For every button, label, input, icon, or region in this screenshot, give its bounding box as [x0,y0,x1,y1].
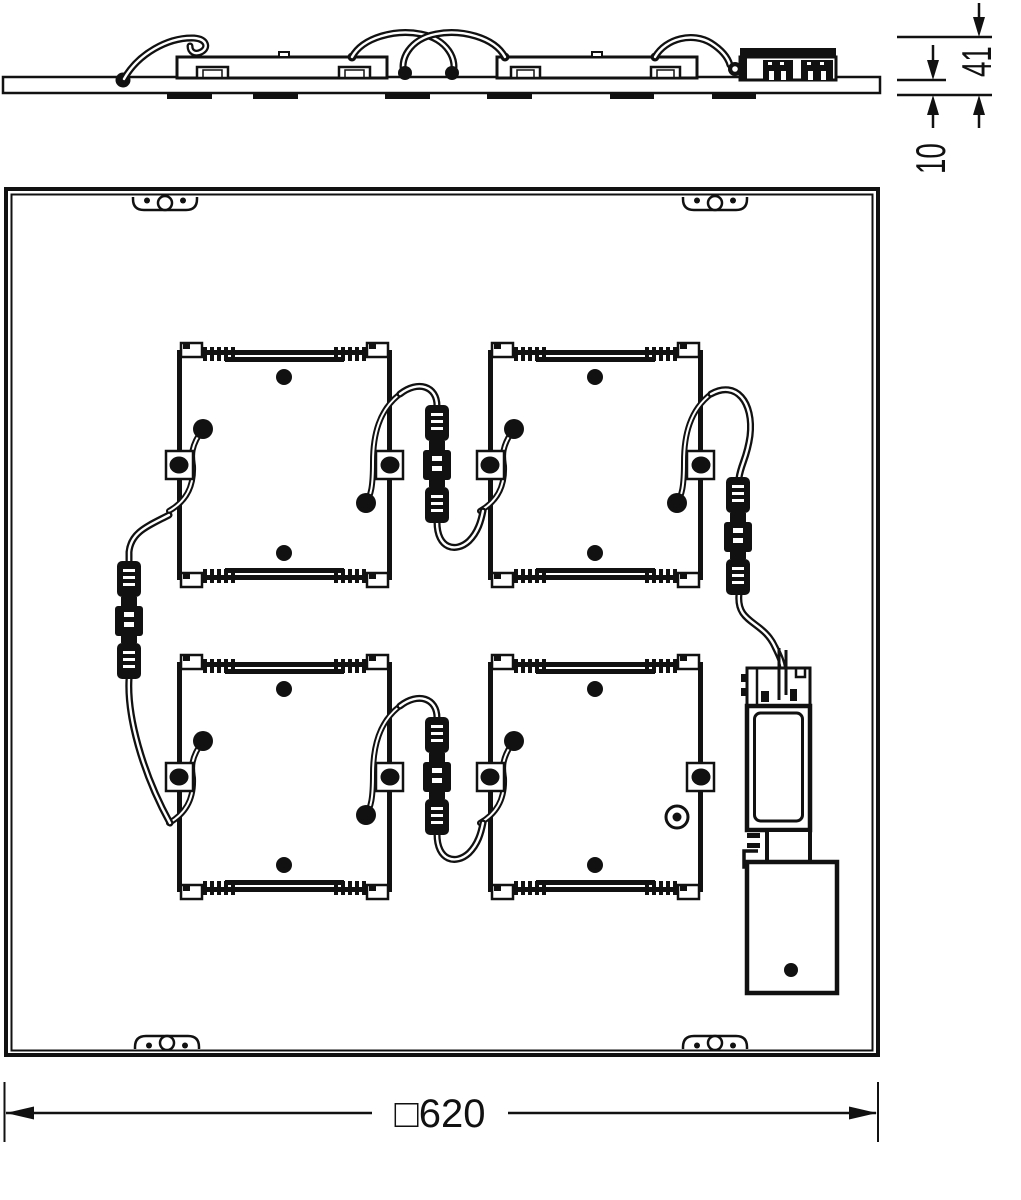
driver-screw-hole [784,963,798,977]
led-module-bottom-left [166,655,403,899]
cable-connector-right [724,477,752,595]
dim-label-620: □620 [395,1092,486,1136]
side-view [3,33,880,99]
terminal-block [763,60,793,80]
mounting-tab-bottom-left [135,1036,199,1050]
arrowhead [973,95,985,115]
arrowhead [973,17,985,37]
dim-label-41: 41 [953,46,1000,77]
driver-side-view [740,48,836,80]
rear-view [6,189,878,1055]
led-panel-dimension-drawing: 41 10 [0,0,1021,1200]
arrowhead [6,1107,34,1120]
technical-drawing-page: 41 10 [0,0,1021,1200]
mounting-tab-top-left [133,196,197,210]
cable-connector-bottom [423,717,451,835]
dim-label-10: 10 [907,143,954,174]
cable-connector-top [423,405,451,523]
arrowhead [927,60,939,80]
dimension-panel-thickness: 10 [897,45,954,174]
module-box-side-2 [497,52,697,78]
led-module-bottom-right [477,655,714,899]
mounting-tab-top-right [683,196,747,210]
arrowhead [927,95,939,115]
unused-connector [666,806,688,828]
led-module-top-right [477,343,714,587]
dimension-total-height: 41 [897,3,1000,128]
led-module-top-left [166,343,403,587]
mounting-tab-bottom-right [683,1036,747,1050]
dimension-panel-width: □620 [5,1082,879,1142]
terminal-block [801,60,833,80]
cable-connector-left [115,561,143,679]
arrowhead [849,1107,877,1120]
